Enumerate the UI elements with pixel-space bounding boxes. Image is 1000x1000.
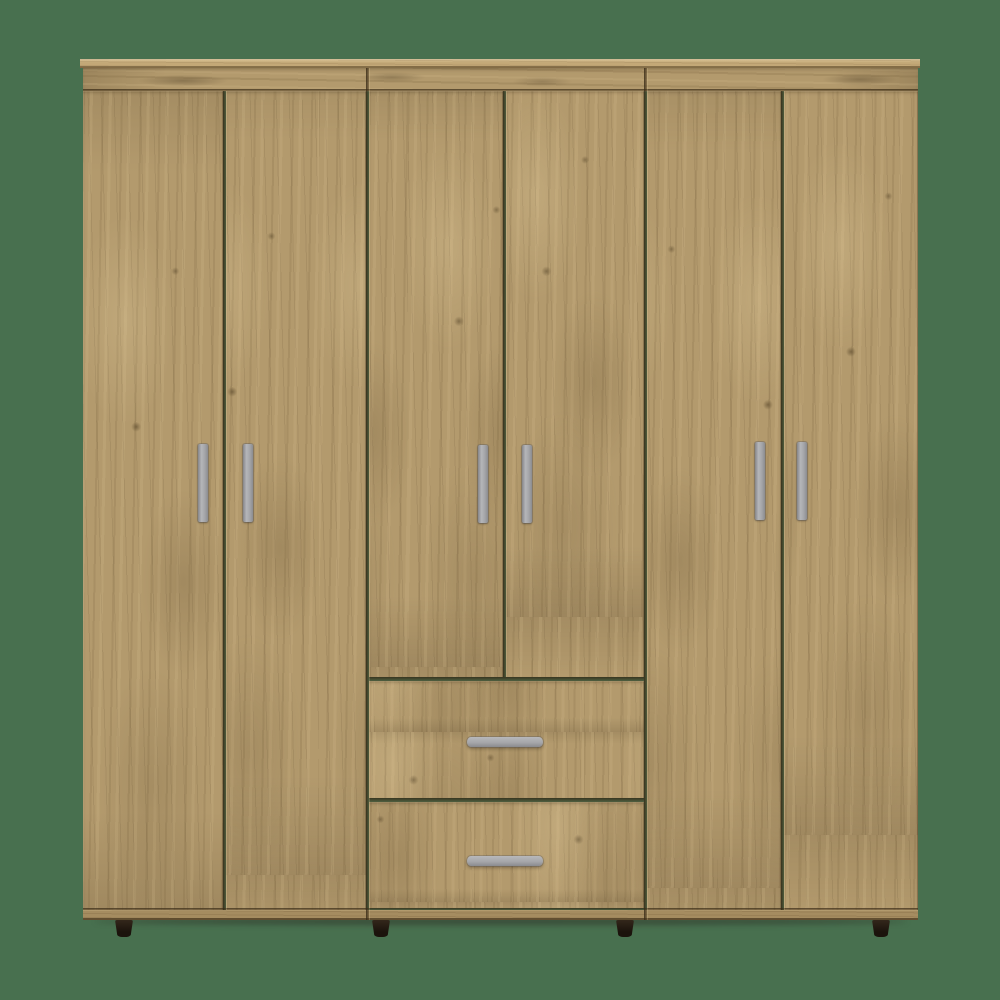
product-photo-stage: [0, 0, 1000, 1000]
door-handle-3: [478, 445, 488, 523]
wardrobe-foot-1: [115, 920, 133, 937]
drawer-handle-2: [467, 856, 543, 866]
door-handle-6: [797, 442, 807, 520]
wardrobe-foot-2: [372, 920, 390, 937]
door-handle-2: [243, 444, 253, 522]
door-3: [369, 91, 503, 677]
door-handle-4: [522, 445, 532, 523]
horizontal-joint-3: [369, 798, 644, 802]
horizontal-joint-4: [83, 908, 918, 910]
drawer-handle-1: [467, 737, 543, 747]
wardrobe-top-board: [80, 59, 920, 68]
horizontal-joint-2: [369, 677, 644, 681]
vertical-joint-5: [781, 91, 784, 910]
vertical-joint-1: [223, 91, 226, 910]
wardrobe-header-panel: [83, 68, 918, 91]
drawer-2: [369, 802, 644, 908]
wardrobe-base-strip: [83, 910, 918, 920]
wardrobe-foot-3: [616, 920, 634, 937]
horizontal-joint-1: [83, 89, 918, 91]
vertical-joint-2: [366, 68, 369, 920]
vertical-joint-3: [503, 91, 506, 677]
wardrobe-foot-4: [872, 920, 890, 937]
door-handle-1: [198, 444, 208, 522]
vertical-joint-4: [644, 68, 647, 920]
door-handle-5: [755, 442, 765, 520]
door-4: [506, 91, 644, 677]
